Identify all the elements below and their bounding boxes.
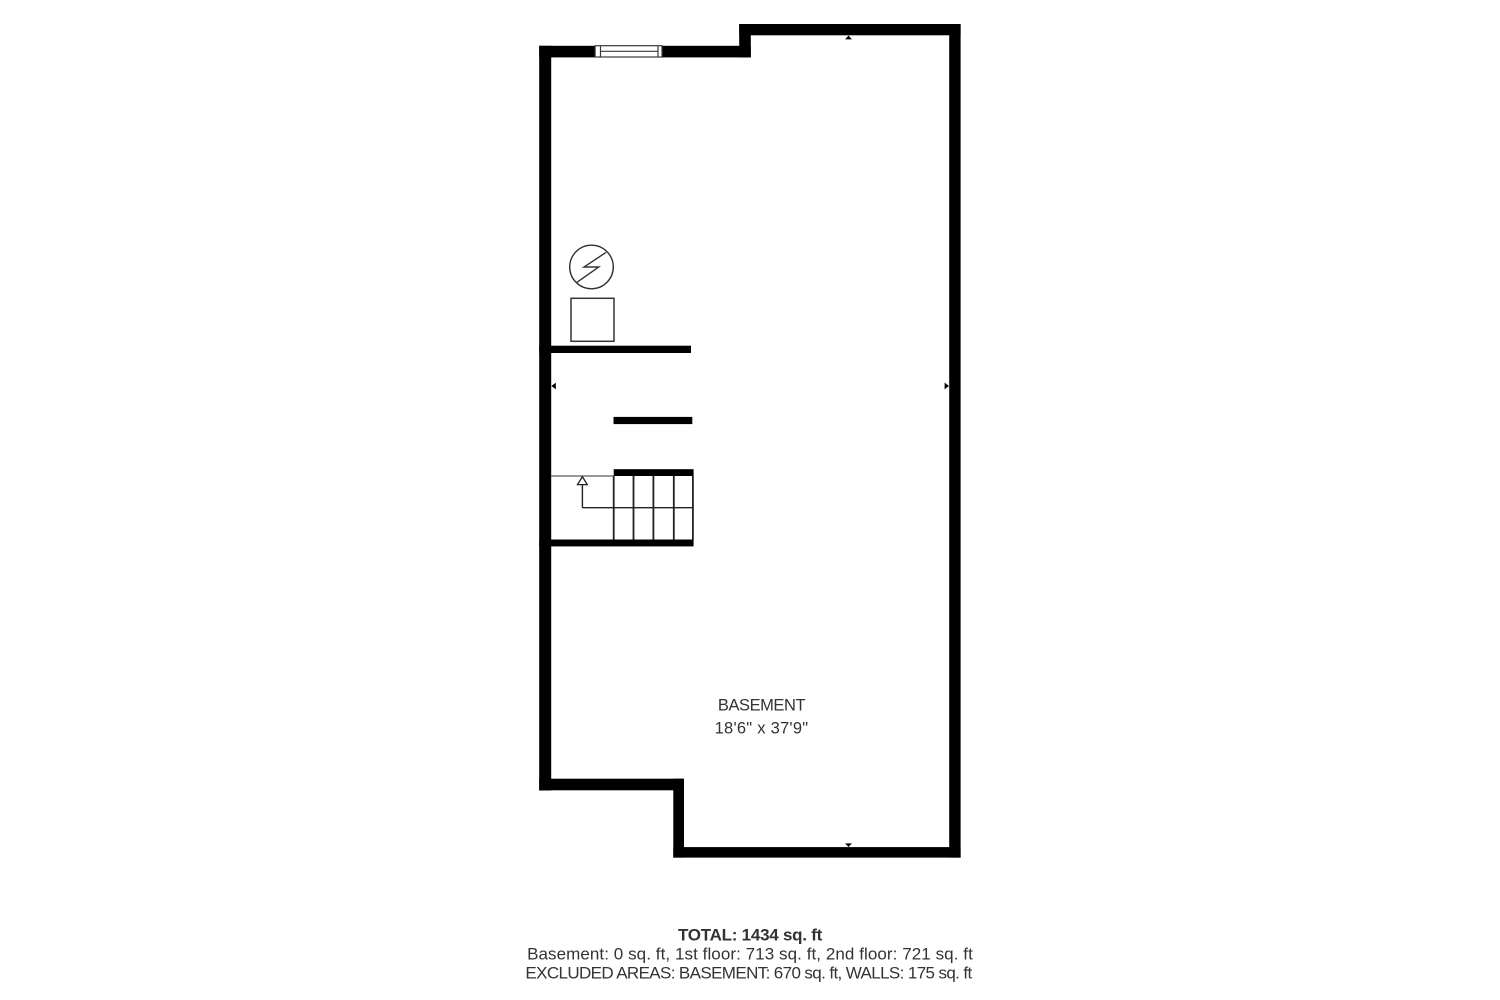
svg-text:18'6" x 37'9": 18'6" x 37'9" bbox=[715, 719, 809, 737]
svg-text:Basement: 0 sq. ft, 1st floor:: Basement: 0 sq. ft, 1st floor: 713 sq. f… bbox=[527, 945, 973, 964]
svg-text:EXCLUDED AREAS: BASEMENT: 670: EXCLUDED AREAS: BASEMENT: 670 sq. ft, WA… bbox=[525, 963, 972, 982]
svg-text:TOTAL: 1434 sq. ft: TOTAL: 1434 sq. ft bbox=[678, 925, 823, 944]
svg-text:BASEMENT: BASEMENT bbox=[718, 697, 806, 715]
